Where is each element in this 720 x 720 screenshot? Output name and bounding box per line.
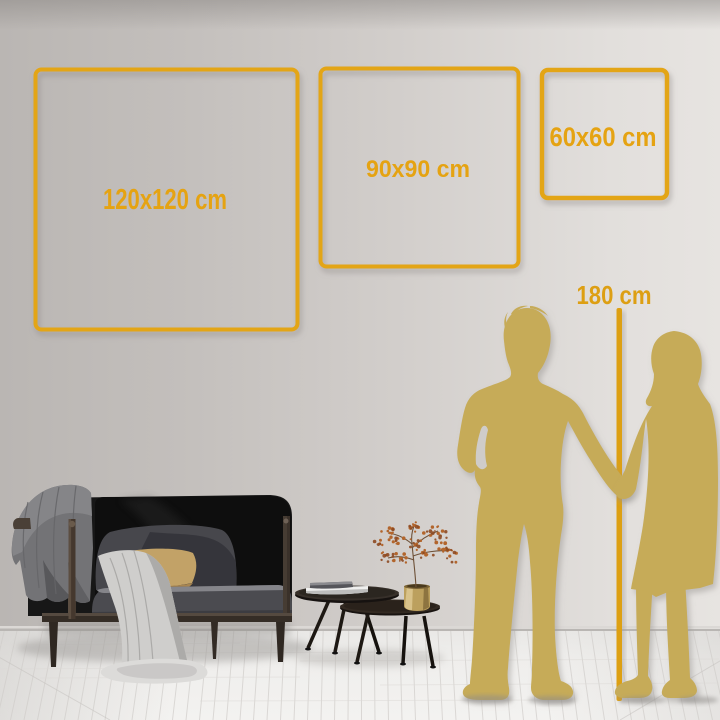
svg-text:60x60 cm: 60x60 cm — [550, 122, 657, 152]
svg-text:180 cm: 180 cm — [577, 280, 652, 310]
svg-text:90x90 cm: 90x90 cm — [366, 156, 470, 183]
svg-text:120x120 cm: 120x120 cm — [103, 184, 227, 216]
